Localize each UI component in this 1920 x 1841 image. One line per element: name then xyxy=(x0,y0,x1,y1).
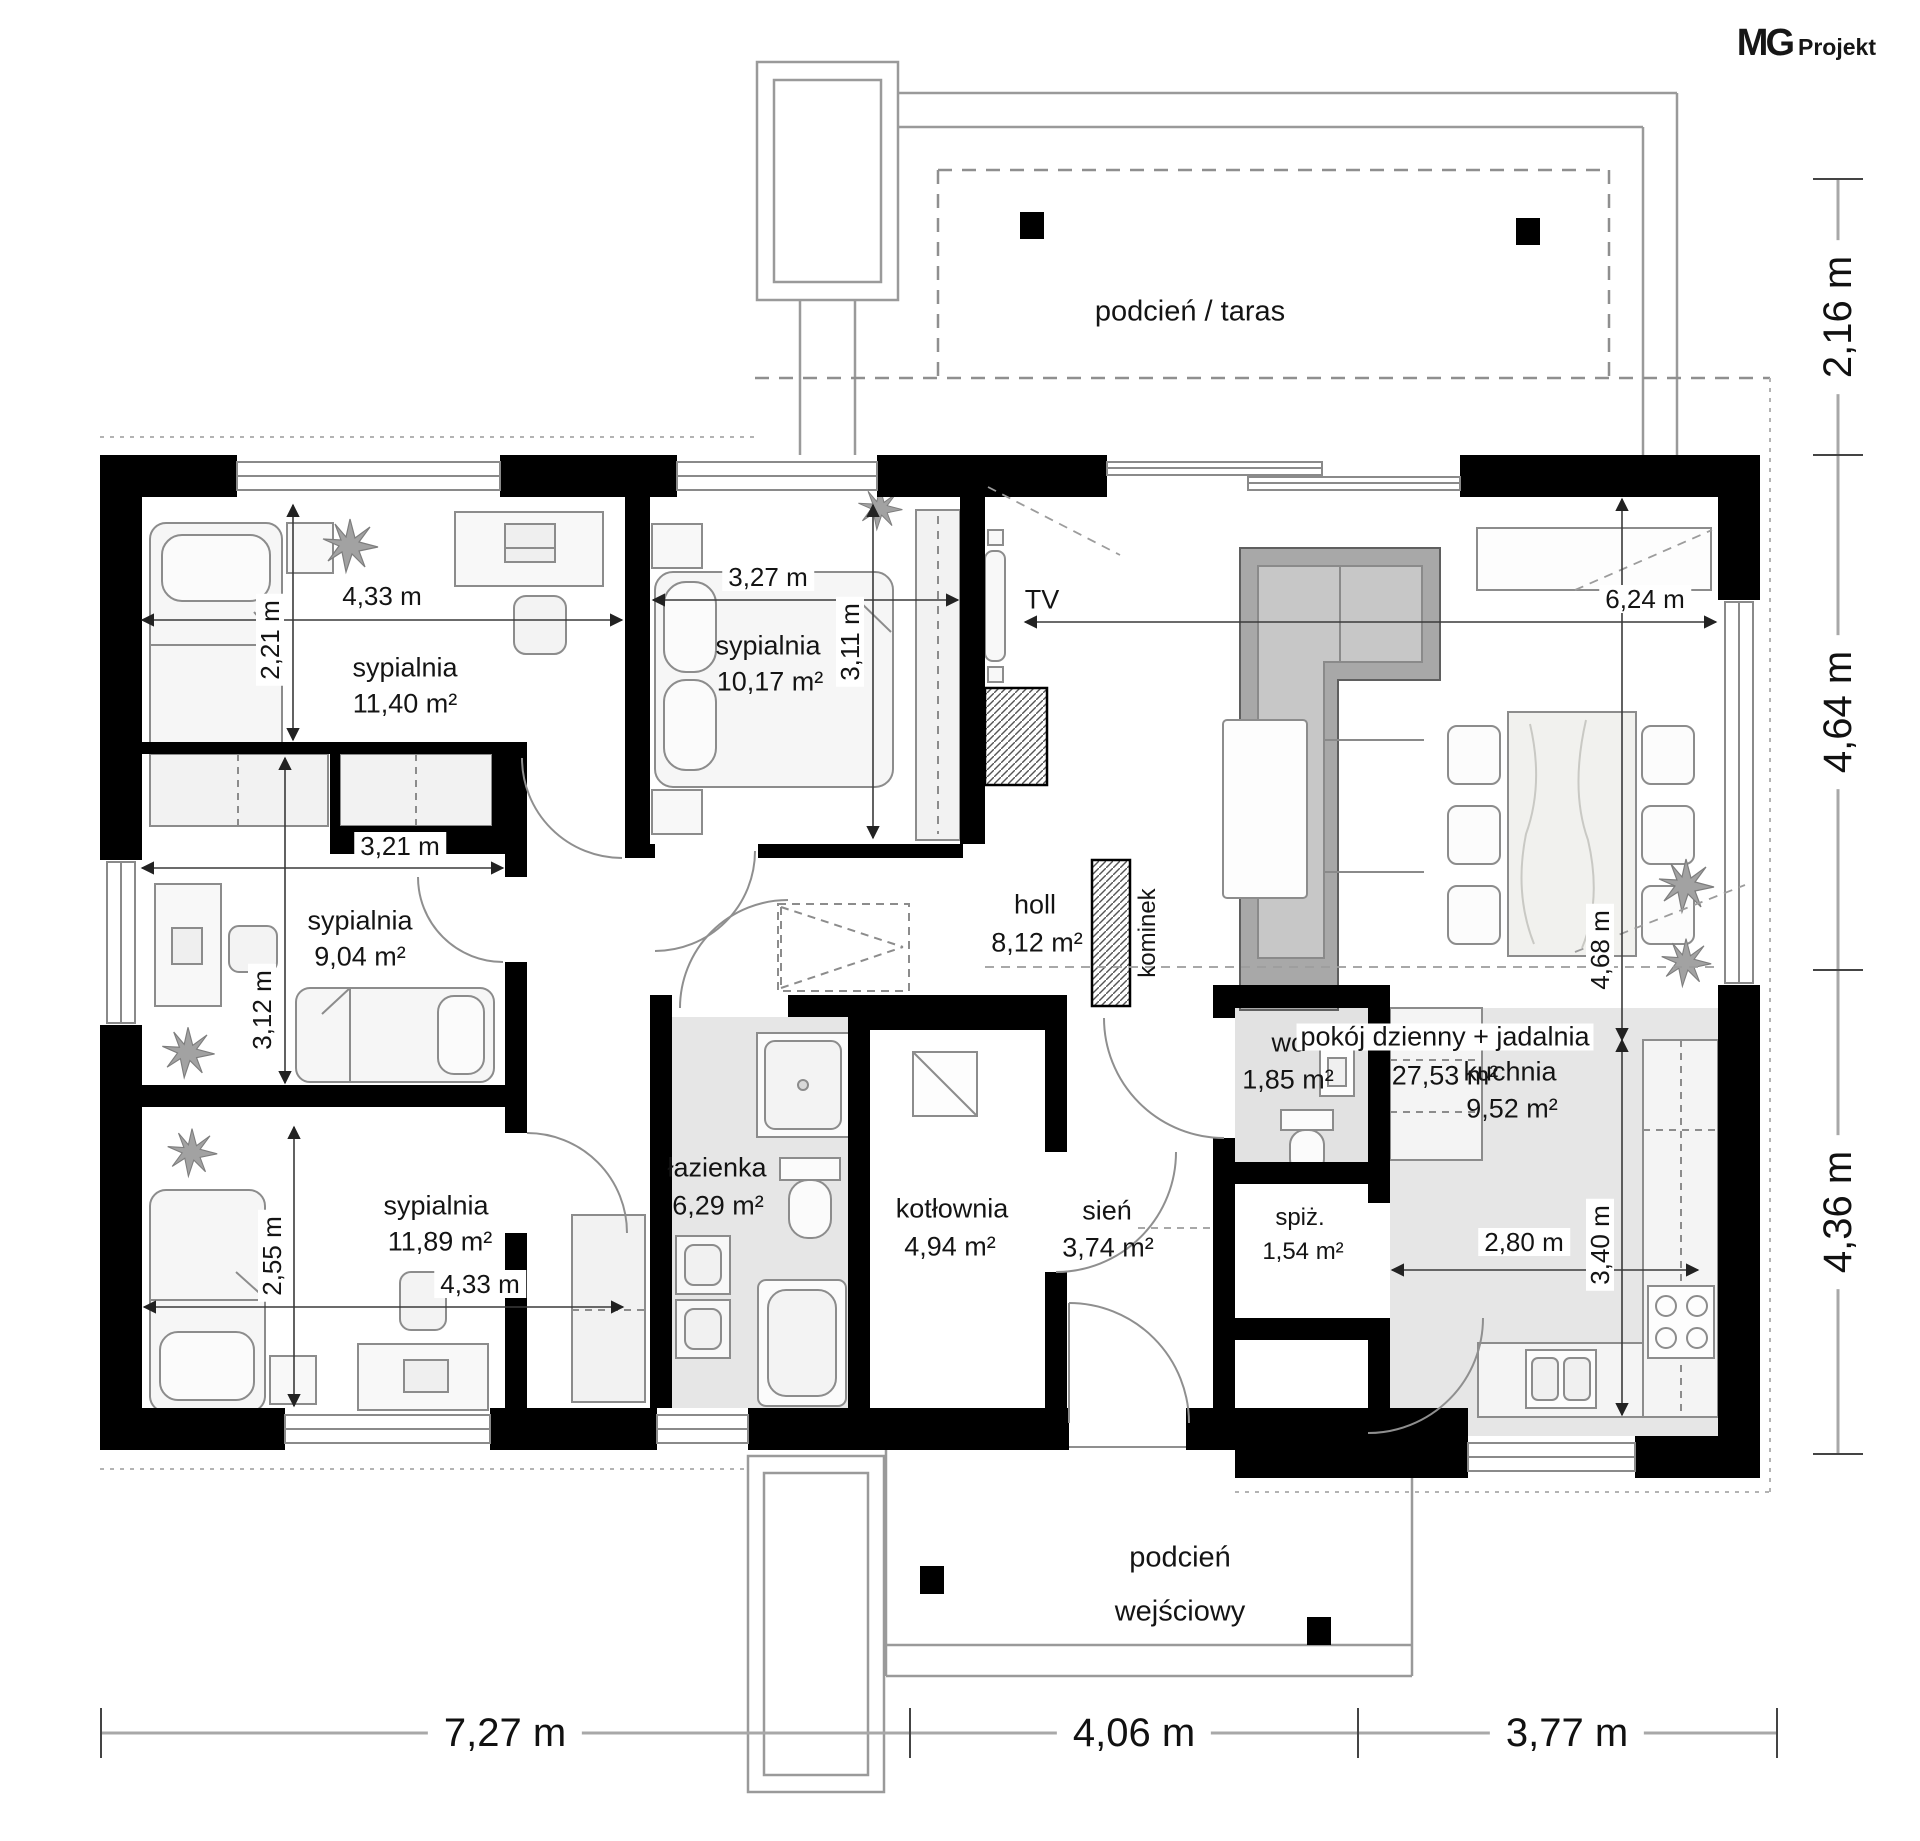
room-name-boiler: kotłownia xyxy=(896,1196,1009,1223)
terrace-eave-dashed xyxy=(755,170,1770,378)
dim-kitchen-height: 3,40 m xyxy=(1586,1199,1614,1291)
room-area-hall: 8,12 m² xyxy=(991,930,1083,957)
dim-bedroom3-width: 3,21 m xyxy=(354,832,446,860)
room-name-living: pokój dzienny + jadalnia xyxy=(1297,1024,1594,1051)
dim-bedroom2-width: 3,27 m xyxy=(722,563,814,591)
door-room1 xyxy=(522,758,622,858)
room-area-wc: 1,85 m² xyxy=(1242,1067,1334,1094)
dim-living-width: 6,24 m xyxy=(1599,585,1691,613)
porch-label-line2: wejściowy xyxy=(1115,1598,1246,1627)
terrace-sliding-door xyxy=(1107,462,1460,490)
wardrobe-room1 xyxy=(150,754,492,826)
boiler xyxy=(913,1052,977,1116)
room-area-bedroom4: 11,89 m² xyxy=(388,1229,493,1256)
dim-overall-right-bottom: 4,36 m xyxy=(1816,1135,1860,1289)
shower xyxy=(757,1033,849,1137)
window xyxy=(107,862,135,1023)
dim-overall-bottom-right: 3,77 m xyxy=(1490,1711,1644,1755)
room-area-bedroom3: 9,04 m² xyxy=(314,944,406,971)
nightstand xyxy=(287,523,333,573)
nightstand xyxy=(270,1356,316,1404)
fireplace-label: kominek xyxy=(1136,888,1160,977)
door-room2 xyxy=(655,851,755,951)
bathtub xyxy=(758,1280,846,1406)
dim-overall-right-top: 2,16 m xyxy=(1816,240,1860,394)
dim-bedroom2-height: 3,11 m xyxy=(836,597,864,687)
dim-kitchen-width: 2,80 m xyxy=(1478,1228,1570,1256)
corridor-closet xyxy=(572,1215,645,1402)
room-name-pantry: spiż. xyxy=(1275,1206,1324,1230)
kitchen-sink xyxy=(1526,1350,1596,1408)
room-area-kitchen: 9,52 m² xyxy=(1466,1096,1558,1123)
bed-single-room3 xyxy=(296,988,494,1082)
dim-bedroom3-height: 3,12 m xyxy=(248,964,276,1056)
terrace-outline xyxy=(757,62,1677,455)
window xyxy=(1725,602,1753,983)
terrace-label: podcień / taras xyxy=(1095,298,1285,327)
brand-logo-suffix: Projekt xyxy=(1798,34,1876,61)
dim-bedroom4-height: 2,55 m xyxy=(258,1210,286,1302)
room-name-bedroom1: sypialnia xyxy=(352,655,457,682)
window xyxy=(657,1415,748,1443)
dim-overall-right-middle: 4,64 m xyxy=(1816,635,1860,789)
window xyxy=(677,462,877,490)
floor-plan-page: MG Projekt podcień / taras podcień wejśc… xyxy=(0,0,1920,1841)
window xyxy=(237,462,500,490)
door-bathroom xyxy=(680,900,788,1008)
tv-cabinet xyxy=(985,530,1005,682)
dim-overall-bottom-left: 7,27 m xyxy=(428,1711,582,1755)
door-entry xyxy=(1069,1303,1189,1423)
room-area-living: 27,53 m² xyxy=(1392,1063,1499,1090)
room-area-bedroom2: 10,17 m² xyxy=(717,669,824,696)
sliding-wardrobe-room2 xyxy=(916,510,960,840)
brand-logo: MG Projekt xyxy=(1737,22,1876,65)
tv-label: TV xyxy=(1025,587,1060,614)
room-name-bathroom: łazienka xyxy=(667,1155,766,1182)
coffee-table xyxy=(1223,720,1307,898)
room-name-vestibule: sień xyxy=(1082,1198,1132,1225)
room-area-bedroom1: 11,40 m² xyxy=(353,691,458,718)
desk-room1 xyxy=(455,512,603,654)
brand-logo-mg: MG xyxy=(1737,22,1792,65)
holl-wardrobe xyxy=(778,904,909,991)
room-name-bedroom4: sypialnia xyxy=(383,1193,488,1220)
window xyxy=(285,1415,490,1443)
kitchen-stove xyxy=(1648,1286,1714,1358)
room-area-vestibule: 3,74 m² xyxy=(1062,1235,1154,1262)
dim-bedroom4-width: 4,33 m xyxy=(434,1270,526,1298)
room-area-bathroom: 6,29 m² xyxy=(672,1193,764,1220)
dim-bedroom1-width: 4,33 m xyxy=(336,582,428,610)
window xyxy=(1468,1443,1635,1471)
dim-bedroom1-height: 2,21 m xyxy=(256,594,284,686)
room-area-boiler: 4,94 m² xyxy=(904,1234,996,1261)
door-wc xyxy=(1104,1018,1224,1138)
room-name-bedroom3: sypialnia xyxy=(307,908,412,935)
room-name-bedroom2: sypialnia xyxy=(715,633,820,660)
dim-overall-bottom-middle: 4,06 m xyxy=(1057,1711,1211,1755)
door-room3 xyxy=(418,877,503,962)
terrace-posts xyxy=(1020,212,1540,245)
room-name-hall: holl xyxy=(1014,892,1056,919)
room-area-pantry: 1,54 m² xyxy=(1262,1240,1343,1264)
porch-label-line1: podcień xyxy=(1129,1544,1231,1573)
floor-plan-drawing xyxy=(0,0,1920,1841)
dim-living-height: 4,68 m xyxy=(1586,904,1614,996)
fireplace xyxy=(985,688,1130,1006)
bed-single-room4 xyxy=(150,1190,265,1412)
